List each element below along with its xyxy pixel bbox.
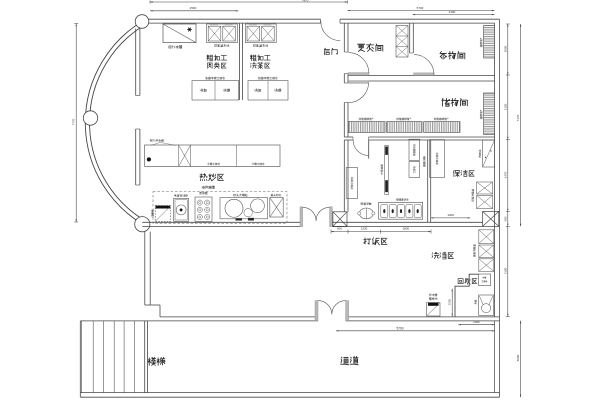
svg-text:5790: 5790 — [396, 326, 403, 330]
svg-text:2500: 2500 — [190, 6, 197, 10]
svg-text:1500: 1500 — [448, 298, 452, 305]
svg-text:600: 600 — [503, 216, 507, 221]
svg-text:1380: 1380 — [473, 320, 480, 324]
svg-text:2000: 2000 — [503, 45, 507, 52]
svg-text:5790: 5790 — [417, 6, 424, 10]
svg-text:7470: 7470 — [302, 0, 309, 3]
svg-text:1200: 1200 — [361, 227, 368, 231]
svg-text:3100: 3100 — [503, 267, 507, 274]
svg-text:600: 600 — [337, 227, 342, 231]
svg-text:3180: 3180 — [449, 10, 456, 14]
svg-text:2100: 2100 — [503, 103, 507, 110]
svg-text:1000: 1000 — [447, 213, 454, 217]
svg-text:2470: 2470 — [503, 171, 507, 178]
svg-text:1800: 1800 — [402, 227, 409, 231]
svg-text:7170: 7170 — [516, 114, 520, 121]
svg-text:7770: 7770 — [71, 118, 75, 125]
svg-text:5000: 5000 — [516, 354, 520, 361]
